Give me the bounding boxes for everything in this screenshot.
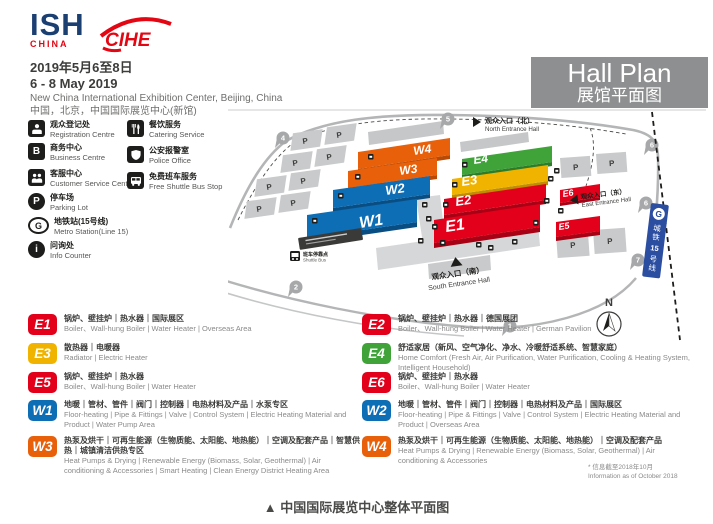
legend-row-E4: E4 舒适家居（新风、空气净化、净水、冷暖舒适系统、智慧家庭） Home Com… xyxy=(362,343,696,372)
svg-text:5: 5 xyxy=(446,115,450,124)
north-entrance: 观众入口（北） North Entrance Hall xyxy=(473,116,539,133)
legend-row-E2: E2 锅炉、壁挂炉｜热水器｜德国展团 Boiler、Wall-hung Boil… xyxy=(362,314,696,335)
hall-badge: E2 xyxy=(362,314,391,335)
legend-en: Floor-heating | Pipe & Fittings | Valve … xyxy=(398,410,696,429)
gate-7: 7 xyxy=(630,254,645,271)
legend-en: Floor-heating | Pipe & Fittings | Valve … xyxy=(64,410,362,429)
facility-label-cn: 免费班车服务 xyxy=(149,172,222,182)
legend-row-E5: E5 锅炉、壁挂炉｜热水器 Boiler、Wall-hung Boiler | … xyxy=(28,372,362,393)
hall-badge: W2 xyxy=(362,400,391,421)
legend-cn: 散热器｜电暖器 xyxy=(64,343,362,353)
metro-line-char: 15 xyxy=(650,243,659,253)
facility-label-cn: 商务中心 xyxy=(50,143,105,153)
legend-cn: 地暖｜管材、管件｜阀门｜控制器｜电热材料及产品｜国际展区 xyxy=(398,400,696,410)
facility-shuttle: 免费班车服务 Free Shuttle Bus Stop xyxy=(127,172,222,191)
legend-row-E1: E1 锅炉、壁挂炉｜热水器｜国际展区 Boiler、Wall-hung Boil… xyxy=(28,314,362,335)
facility-customer-service: 客服中心 Customer Service Centre xyxy=(28,169,134,188)
legend-en: Radiator | Electric Heater xyxy=(64,353,362,363)
legend-row-W1: W1 地暖｜管材、管件｜阀门｜控制器｜电热材料及产品｜水泵专区 Floor-he… xyxy=(28,400,362,429)
cihe-logo-text: CIHE xyxy=(105,30,152,51)
facility-label-cn: 客服中心 xyxy=(50,169,134,179)
north-entrance-arrow-icon xyxy=(473,117,481,127)
facility-label-en: Parking Lot xyxy=(50,203,88,212)
hall-badge: E1 xyxy=(28,314,57,335)
hall-badge: E3 xyxy=(28,343,57,364)
facility-label-en: Business Centre xyxy=(50,153,105,162)
legend-cn: 舒适家居（新风、空气净化、净水、冷暖舒适系统、智慧家庭） xyxy=(398,343,696,353)
hall-label: E3 xyxy=(460,172,479,189)
parking-icon: P xyxy=(28,193,45,210)
facility-label-en: Catering Service xyxy=(149,130,204,139)
hall-badge: E5 xyxy=(28,372,57,393)
north-entrance-cn: 观众入口（北） xyxy=(485,116,534,125)
shuttle-stop-en: Shuttle Bus xyxy=(303,258,327,263)
gate-2: 2 xyxy=(288,281,303,298)
hall-label: W4 xyxy=(412,141,432,158)
facility-info: i 问询处 Info Counter xyxy=(28,241,91,260)
ish-china-logo: ISH CHINA xyxy=(30,10,85,49)
legend-row-W4: W4 热泵及烘干｜可再生能源（生物质能、太阳能、地热能）｜空调及配套产品 Hea… xyxy=(362,436,696,465)
metro-icon: G xyxy=(28,217,49,234)
hall-plan-page: ISH CHINA CIHE 2019年5月6至8日 6 - 8 May 201… xyxy=(0,0,713,524)
date-en: 6 - 8 May 2019 xyxy=(30,76,282,92)
hall-badge: W3 xyxy=(28,436,57,457)
info-note-cn: * 信息截至2018年10月 xyxy=(588,464,678,473)
legend-cn: 热泵及烘干｜可再生能源（生物质能、太阳能、地热能）｜空调及配套产品 xyxy=(398,436,696,446)
hall-label: W1 xyxy=(358,212,384,232)
hall-badge: E6 xyxy=(362,372,391,393)
legend-en: Heat Pumps & Drying | Renewable Energy (… xyxy=(398,446,696,465)
svg-text:6: 6 xyxy=(650,141,654,150)
legend-row-E6: E6 锅炉、壁挂炉｜热水器 Boiler、Wall-hung Boiler | … xyxy=(362,372,696,393)
caption-text: 中国国际展览中心整体平面图 xyxy=(280,500,449,515)
info-icon: i xyxy=(28,241,45,258)
svg-text:2: 2 xyxy=(294,283,298,292)
site-map: P P P P P P P P P P P P xyxy=(228,98,710,348)
shuttle-bus-stop: 班车停靠点 Shuttle Bus xyxy=(290,251,328,263)
ish-logo-text: ISH xyxy=(30,10,85,39)
compass-n: N xyxy=(605,297,613,309)
info-note-en: Information as of October 2018 xyxy=(588,473,678,482)
facility-label-en: Police Office xyxy=(149,156,191,165)
facility-business: B 商务中心 Business Centre xyxy=(28,143,105,162)
legend-cn: 地暖｜管材、管件｜阀门｜控制器｜电热材料及产品｜水泵专区 xyxy=(64,400,362,410)
legend-en: Boiler、Wall-hung Boiler | Water Heater xyxy=(398,382,696,392)
facility-label-cn: 停车场 xyxy=(50,193,88,203)
legend-en: Heat Pumps & Drying | Renewable Energy (… xyxy=(64,456,362,475)
shuttle-bus-icon xyxy=(127,172,144,189)
facility-label-cn: 地铁站(15号线) xyxy=(54,217,128,227)
hall-badge: E4 xyxy=(362,343,391,364)
facility-label-en: Free Shuttle Bus Stop xyxy=(149,182,222,191)
hall-plan-title-en: Hall Plan xyxy=(567,60,671,86)
legend-en: Home Comfort (Fresh Air, Air Purificatio… xyxy=(398,353,696,372)
figure-caption: ▲ 中国国际展览中心整体平面图 xyxy=(0,497,713,516)
facility-label-en: Metro Station(Line 15) xyxy=(54,227,128,236)
facility-label-en: Customer Service Centre xyxy=(50,179,134,188)
legend-row-W2: W2 地暖｜管材、管件｜阀门｜控制器｜电热材料及产品｜国际展区 Floor-he… xyxy=(362,400,696,429)
legend-en: Boiler、Wall-hung Boiler | Water Heater |… xyxy=(398,324,696,334)
police-icon xyxy=(127,146,144,163)
facility-label-cn: 餐饮服务 xyxy=(149,120,204,130)
caption-marker-icon: ▲ xyxy=(264,500,277,515)
business-b-icon: B xyxy=(28,143,45,160)
cihe-logo: CIHE xyxy=(97,14,175,59)
svg-text:7: 7 xyxy=(636,256,640,265)
legend-en: Boiler、Wall-hung Boiler | Water Heater |… xyxy=(64,324,362,334)
facility-metro: G 地铁站(15号线) Metro Station(Line 15) xyxy=(28,217,128,236)
hall-label: W3 xyxy=(398,161,418,178)
hall-badge: W4 xyxy=(362,436,391,457)
registration-desk-icon xyxy=(28,120,45,137)
facility-label-cn: 问询处 xyxy=(50,241,91,251)
hall-label: E1 xyxy=(444,216,466,236)
facility-label-en: Registration Centre xyxy=(50,130,115,139)
legend-row-E3: E3 散热器｜电暖器 Radiator | Electric Heater xyxy=(28,343,362,364)
legend-cn: 热泵及烘干｜可再生能源（生物质能、太阳能、地热能）｜空调及配套产品｜智慧供热｜城… xyxy=(64,436,362,456)
cihe-swoosh-icon: CIHE xyxy=(97,14,175,54)
svg-text:6: 6 xyxy=(644,199,648,208)
north-entrance-en: North Entrance Hall xyxy=(485,126,539,133)
hall-label: E2 xyxy=(454,192,473,209)
catering-icon xyxy=(127,120,144,137)
facility-label-en: Info Counter xyxy=(50,251,91,260)
facility-label-cn: 观众登记处 xyxy=(50,120,115,130)
facility-catering: 餐饮服务 Catering Service xyxy=(127,120,204,139)
legend-cn: 锅炉、壁挂炉｜热水器 xyxy=(64,372,362,382)
legend-row-W3: W3 热泵及烘干｜可再生能源（生物质能、太阳能、地热能）｜空调及配套产品｜智慧供… xyxy=(28,436,362,475)
legend-cn: 锅炉、壁挂炉｜热水器 xyxy=(398,372,696,382)
legend-cn: 锅炉、壁挂炉｜热水器｜国际展区 xyxy=(64,314,362,324)
hall-label: E4 xyxy=(472,151,489,167)
legend-cn: 锅炉、壁挂炉｜热水器｜德国展团 xyxy=(398,314,696,324)
facility-parking: P 停车场 Parking Lot xyxy=(28,193,88,212)
hall-E5: E5 xyxy=(556,216,600,241)
legend-en: Boiler、Wall-hung Boiler | Water Heater xyxy=(64,382,362,392)
facility-registration: 观众登记处 Registration Centre xyxy=(28,120,115,139)
facility-police: 公安报警室 Police Office xyxy=(127,146,191,165)
hall-badge: W1 xyxy=(28,400,57,421)
date-cn: 2019年5月6至8日 xyxy=(30,60,282,76)
customer-service-icon xyxy=(28,169,45,186)
info-note: * 信息截至2018年10月 Information as of October… xyxy=(588,464,678,481)
hall-label: W2 xyxy=(384,180,406,198)
facility-label-cn: 公安报警室 xyxy=(149,146,191,156)
